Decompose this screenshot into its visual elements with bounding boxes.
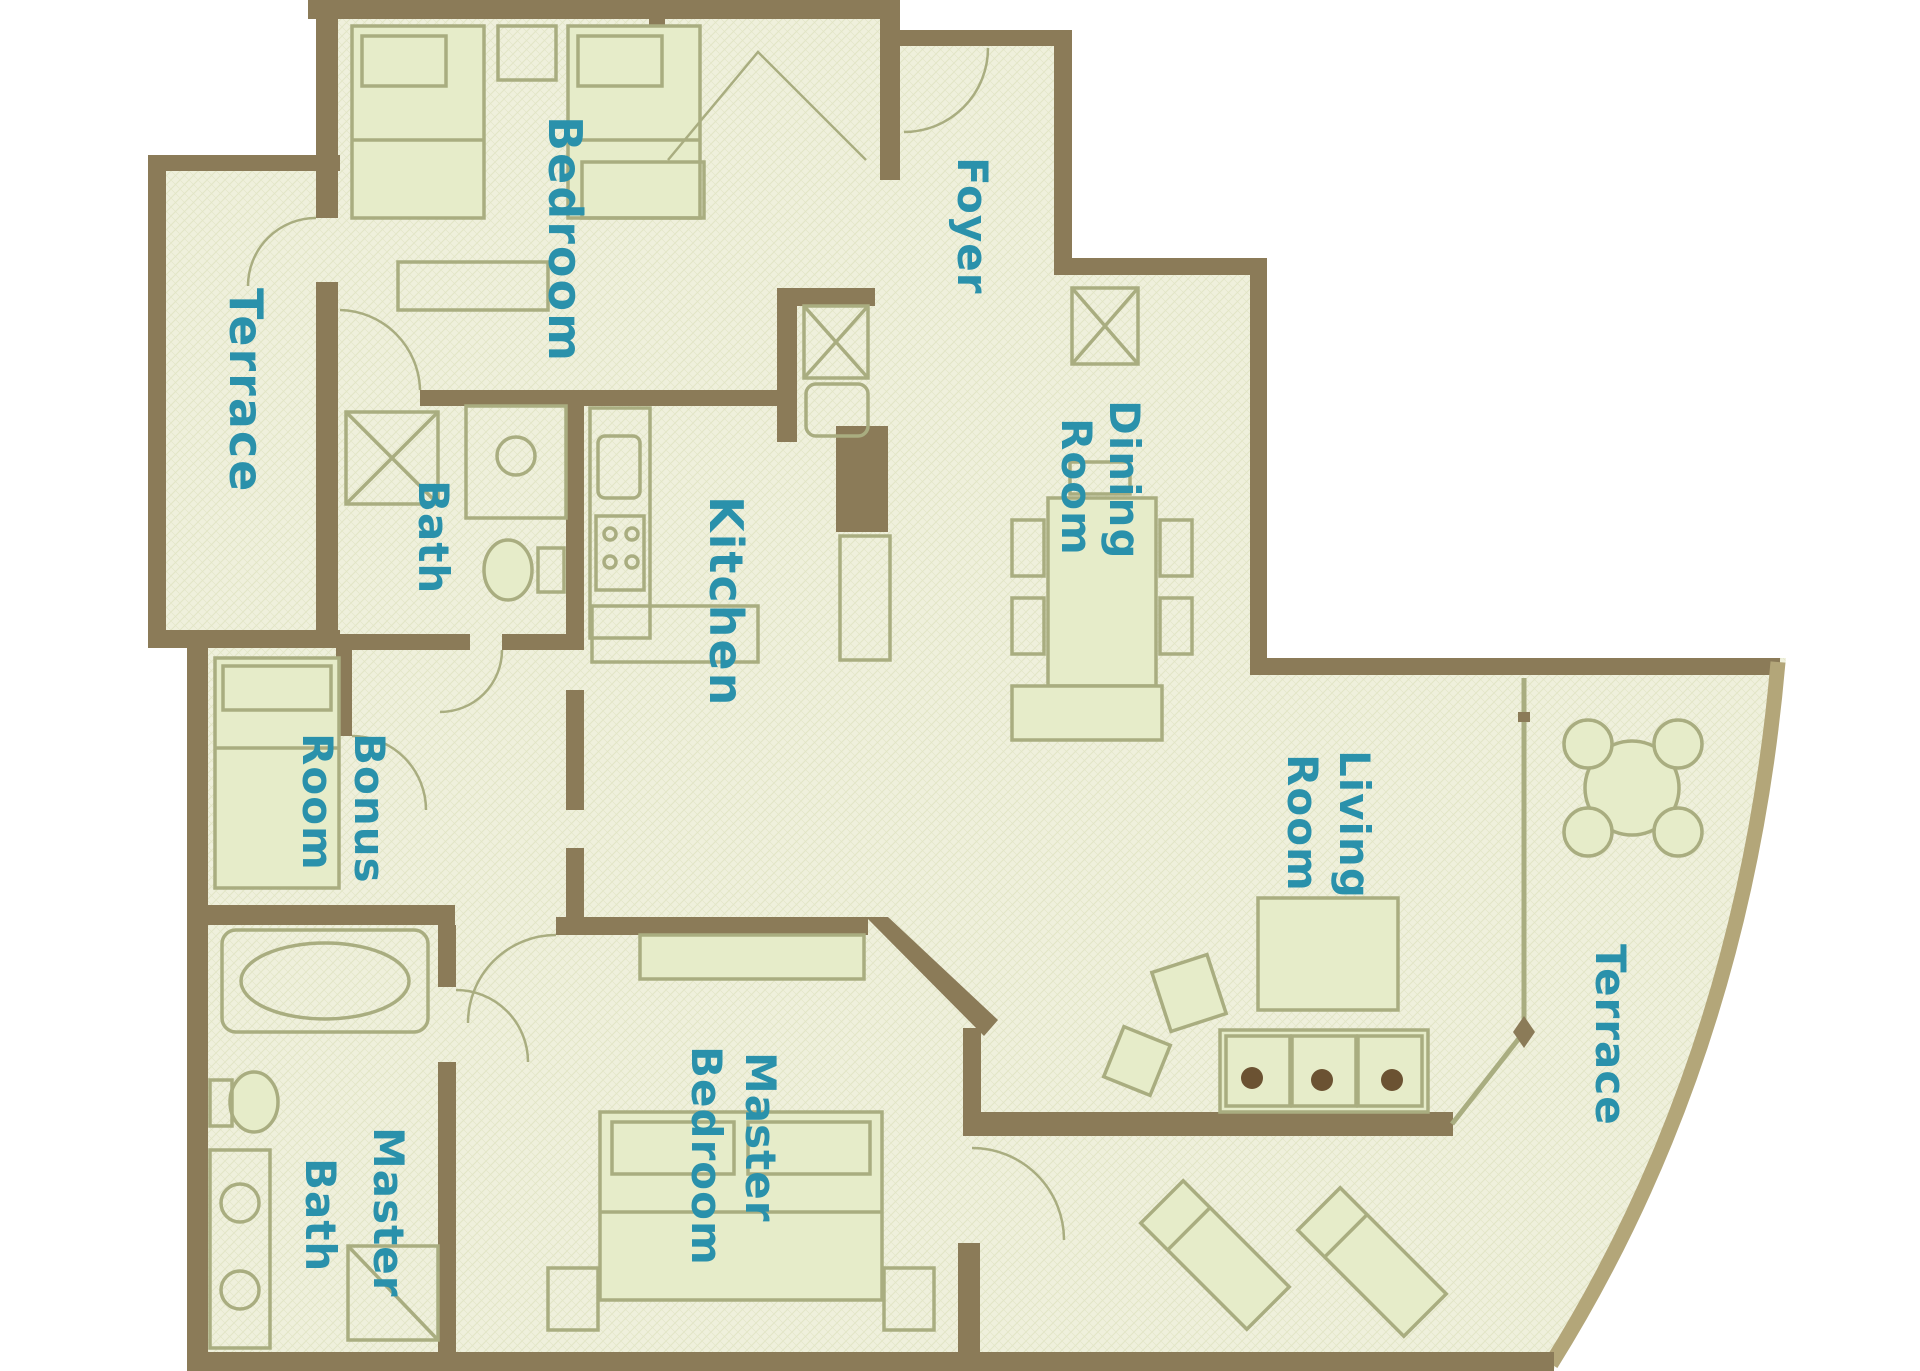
kitchen-label: Kitchen [699, 496, 753, 707]
wall [438, 1062, 456, 1352]
pantry-block [836, 426, 888, 532]
wall [963, 1028, 981, 1118]
wall [316, 14, 338, 218]
bedroom-label: Bedroom [538, 116, 592, 363]
patio-chair [1564, 808, 1612, 856]
toilet [230, 1072, 278, 1132]
wall [190, 1352, 1554, 1371]
coffee-table [1258, 898, 1398, 1010]
dining-room-label-line1: Dining [1100, 400, 1149, 560]
bath-label: Bath [409, 480, 458, 594]
wall [1250, 258, 1267, 674]
twin-bed [352, 26, 484, 218]
master-bedroom-label-line1: Master [736, 1052, 785, 1222]
bonus-room-label-line2: Room [293, 733, 342, 871]
dresser [640, 935, 864, 979]
floor-plan-page: Bedroom Foyer Terrace Bath Kitchen Dinin… [0, 0, 1920, 1371]
terrace-lower-label: Terrace [1586, 944, 1635, 1126]
wall [438, 925, 456, 987]
floor-plan: Bedroom Foyer Terrace Bath Kitchen Dinin… [0, 0, 1920, 1371]
bonus-room-label-line1: Bonus [345, 733, 394, 884]
wall [316, 282, 338, 648]
wall [1054, 258, 1266, 275]
wall [566, 848, 584, 917]
wall [566, 398, 584, 650]
wall [566, 690, 584, 810]
throw-pillow [1241, 1067, 1263, 1089]
wall [502, 634, 584, 650]
wall [420, 390, 778, 406]
wall [187, 630, 208, 1371]
railing-post [1518, 712, 1530, 722]
wall [1250, 658, 1780, 675]
wall [892, 30, 1072, 46]
wall [308, 0, 900, 19]
master-bath-label-line1: Master [364, 1127, 413, 1297]
wall [880, 0, 900, 180]
living-room-label-line1: Living [1330, 750, 1379, 899]
patio-chair [1564, 720, 1612, 768]
throw-pillow [1311, 1069, 1333, 1091]
master-bedroom-label-line2: Bedroom [682, 1046, 731, 1266]
wall [148, 155, 340, 171]
wall [777, 288, 797, 442]
throw-pillow [1381, 1069, 1403, 1091]
wall [338, 634, 470, 650]
wall [148, 630, 340, 648]
toilet [484, 540, 532, 600]
wall [958, 1243, 980, 1355]
dining-room-label-line2: Room [1052, 418, 1101, 556]
terrace-upper-label: Terrace [219, 288, 273, 493]
wall [1054, 30, 1072, 274]
living-room-label-line2: Room [1278, 754, 1327, 892]
media-console [1012, 686, 1162, 740]
patio-chair [1654, 808, 1702, 856]
wall [556, 917, 868, 935]
wall [187, 905, 455, 925]
patio-chair [1654, 720, 1702, 768]
wall [148, 155, 166, 648]
master-bath-label-line2: Bath [296, 1158, 345, 1272]
foyer-label: Foyer [948, 157, 997, 294]
wall [963, 1112, 1453, 1136]
